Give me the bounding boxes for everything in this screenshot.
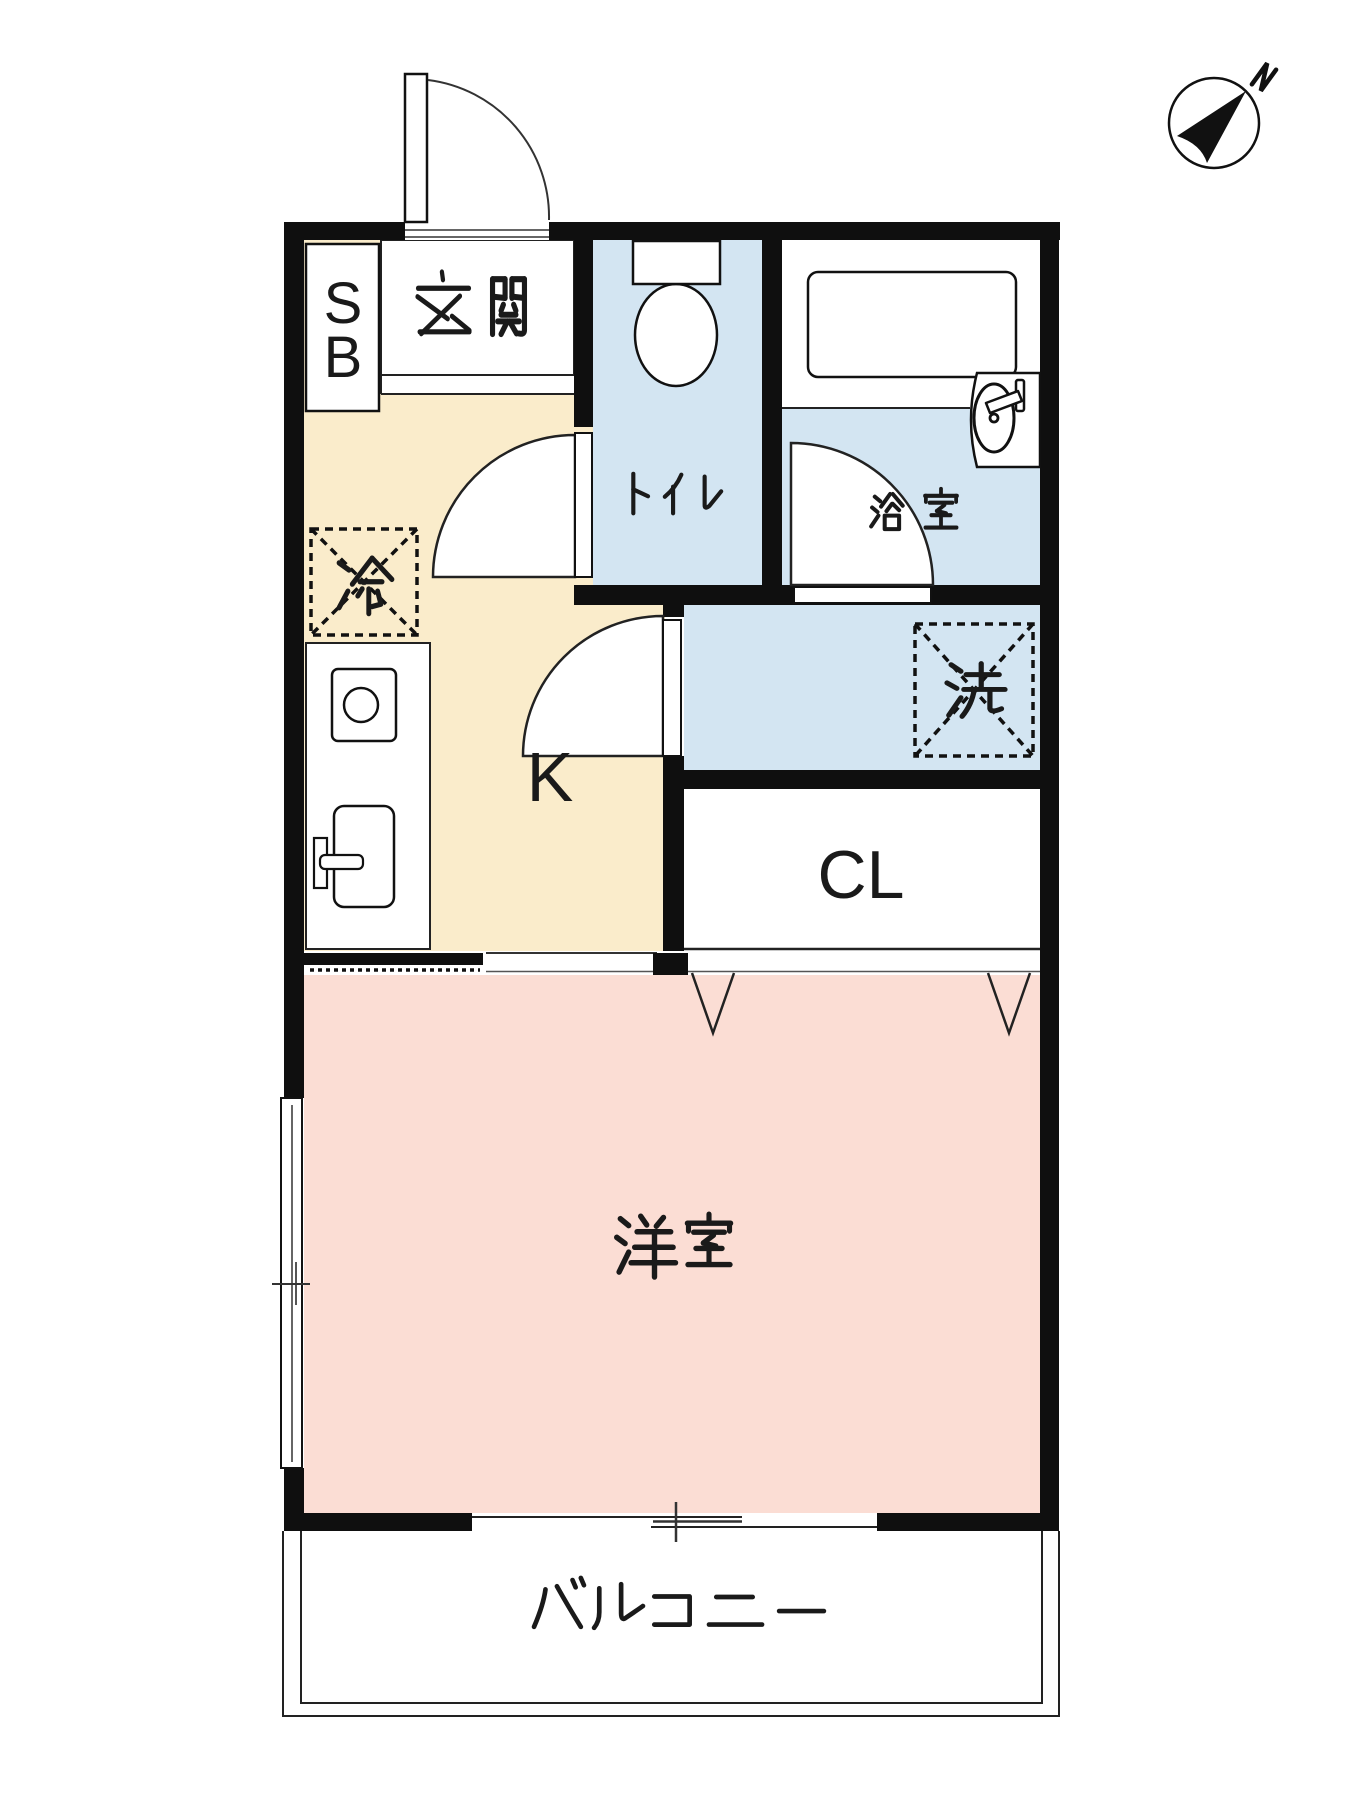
svg-text:CL: CL (818, 837, 905, 913)
svg-text:K: K (527, 738, 574, 816)
svg-text:B: B (324, 325, 363, 390)
